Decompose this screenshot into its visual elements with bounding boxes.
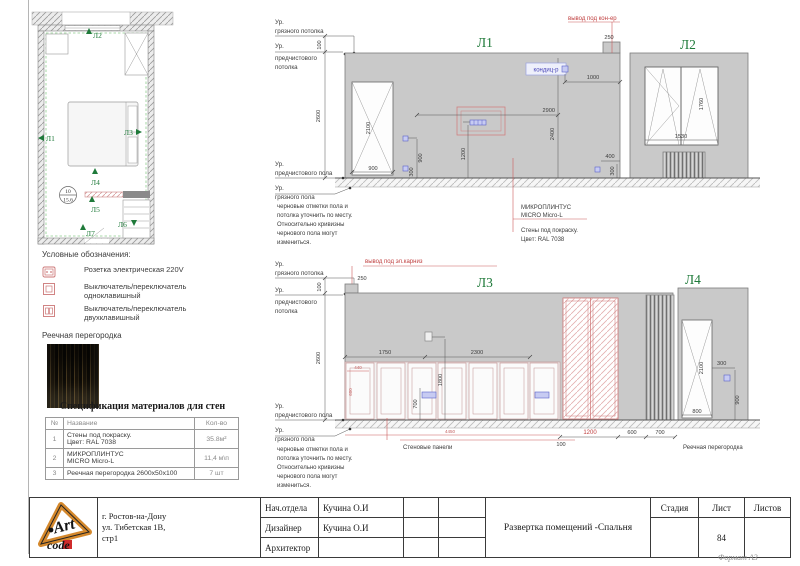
dim-2600: 2600 [316,352,322,364]
note-line-1: черновые отметки пола и [277,447,348,453]
dim-300: 300 [409,167,415,176]
level-dirty-ceiling: грязного потолка [275,270,324,277]
company-logo: Art code [30,499,96,554]
marker-l3: Л3 [124,128,133,137]
spec-row3-num: 3 [46,468,64,480]
callout-conditioner: кондиц-р [534,68,560,74]
slat-partition-photo [47,344,99,408]
sheets-value [745,518,791,558]
duct-outlet-box [603,42,620,53]
title-block: Art code г. Ростов-на-Дону ул. Тибетская… [29,497,791,558]
name-head-of-dept: Кучина О.И [319,498,404,518]
callout-cond-out: вывод под кон-ер [568,16,617,22]
legend-item-switch-single: Выключатель/переключатель одноклавишный [42,283,267,300]
legend-title: Условные обозначения: [42,250,267,259]
dim-4450: 4450 [445,429,456,434]
dim-440: 440 [354,365,362,370]
dim-700: 700 [413,399,419,408]
level-pre-floor: предчистового пола [275,170,333,177]
marker-arrow-l4 [92,168,98,174]
sheet-frame-line [28,0,29,554]
dim-300: 300 [610,166,616,175]
level-pre-ceiling-1: предчистового [275,55,317,62]
dim-300: 300 [717,361,726,367]
level-pre-floor: предчистового пола [275,412,333,419]
role-designer: Дизайнер [261,518,319,538]
socket-strip-icon [422,392,436,398]
plan-slat-partition [85,191,150,198]
legend-switch-double-line2: двухклавишный [84,314,186,323]
elevation-l4-title: Л4 [685,272,701,287]
level-ur: Ур. [275,403,284,410]
conditioner-socket-icon [562,66,568,72]
spec-row1-num: 1 [46,430,64,449]
note-line-2: потолка уточнить по месту. [277,213,353,219]
switch-icon [724,375,730,381]
empty-cell [404,538,439,558]
marker-l5: Л5 [91,205,100,214]
switch-icon [425,332,432,341]
dim-1800: 1800 [438,374,444,386]
spec-col-num: № [46,418,64,430]
note-line-2: потолка уточнить по месту. [277,456,353,462]
spec-table: № Название Кол-во 1 Стены под покраску. … [45,417,239,480]
format-label: Формат А3 [718,553,758,562]
level-dirty-ceiling: грязного потолка [275,28,324,35]
note-line-4: чернового пола могут [277,474,338,480]
name-designer: Кучина О.И [319,518,404,538]
address-line-2: ул. Тибетская 1В, [102,522,256,533]
level-dirty-floor: грязного пола [275,436,315,443]
elevation-l2: 1760 1530 [630,53,748,178]
level-labels-bottom: Ур. грязного потолка Ур. предчистового п… [275,261,355,422]
level-pre-ceiling-1: предчистового [275,299,317,306]
window-l2: 1760 1530 [645,67,718,145]
note-line-4: чернового пола могут [277,231,338,237]
note-line-3: Относительно кривизны [277,222,344,228]
level-ur: Ур. [275,185,284,192]
spec-row-2: 2 МИКРОПЛИНТУС MICRO Micro-L 11,4 м\п [46,449,239,468]
socket-icon [403,166,408,171]
level-dirty-floor: грязного пола [275,194,315,201]
role-architect: Архитектор [261,538,319,558]
callout-skirting-2: MICRO Micro-L [521,213,563,219]
legend-socket-label: Розетка электрическая 220V [84,266,184,275]
legend-switch-single-label: Выключатель/переключатель одноклавишный [84,283,186,300]
dim-2900: 2900 [543,108,555,114]
level-pre-ceiling-2: потолка [275,64,298,71]
elevation-l1-title: Л1 [477,35,493,50]
spec-row3-name: Реечная перегородка 2600x50x100 [64,468,195,480]
dim-900: 900 [735,395,741,404]
dim-2100: 2100 [699,362,705,374]
room-area: 15.6 [63,198,73,204]
spec-table-block: Спецификация материалов для стен № Назва… [45,401,240,480]
level-pre-ceiling-2: потолка [275,308,298,315]
dim-900: 900 [368,166,377,172]
radiator [663,152,705,178]
spec-row-1: 1 Стены под покраску. Цвет: RAL 7038 35.… [46,430,239,449]
legend-switch-double-label: Выключатель/переключатель двухклавишный [84,305,186,322]
floor-hatch-top [335,178,760,187]
empty-cell [439,498,486,518]
slat-partition [646,295,674,420]
level-ur: Ур. [275,287,284,294]
dim-1200: 1200 [583,430,597,436]
logo-cell: Art code [30,498,98,558]
floor-hatch-bottom [335,420,760,428]
dim-600: 600 [348,388,353,396]
dim-100: 100 [317,282,323,291]
dim-1750: 1750 [379,350,391,356]
floor-labels-bottom: Ур. предчистового пола Ур. грязного пола… [275,403,353,489]
logo-code-text: code [47,538,70,552]
spec-row2-qty: 11,4 м\п [195,449,239,468]
stage-label: Стадия [651,498,699,518]
dim-250: 250 [357,276,366,282]
elevation-l2-title: Л2 [680,37,696,52]
plan-neighbor-walls [32,12,173,25]
spec-row2-num: 2 [46,449,64,468]
elevation-l4: 2100 800 300 900 [678,288,748,420]
address-line-3: стр1 [102,533,256,544]
note-line-5: измениться. [277,240,311,246]
document-title: Развертка помещений -Спальня [486,498,651,558]
dim-2100: 2100 [366,122,372,134]
spec-table-title: Спецификация материалов для стен [45,401,240,412]
cornice-outlet-box [345,284,358,293]
callout-paint-1: Стены под покраску. [521,228,578,234]
dim-600: 600 [627,430,636,436]
spec-row2-name2: MICRO Micro-L [67,458,191,465]
dim-250: 250 [604,35,613,41]
address-line-1: г. Ростов-на-Дону [102,511,256,522]
spec-row2-name1: МИКРОПЛИНТУС [67,451,191,458]
legend-partition-label: Реечная перегородка [42,331,267,340]
legend-item-switch-double: Выключатель/переключатель двухклавишный [42,305,267,322]
note-line-3: Относительно кривизны [277,465,344,471]
plan-room-stamp: 10 15.6 [60,187,77,204]
dim-2400: 2400 [550,128,556,140]
role-head-of-dept: Нач.отдела [261,498,319,518]
spec-header-row: № Название Кол-во [46,418,239,430]
socket-icon [595,167,600,172]
dim-800: 800 [692,409,701,415]
stage-value [651,518,699,558]
dim-100: 100 [317,40,323,49]
address-cell: г. Ростов-на-Дону ул. Тибетская 1В, стр1 [98,498,261,558]
callout-slat-partition: Реечная перегородка [683,445,743,451]
wall-panels [345,362,560,420]
dim-700: 700 [655,430,664,436]
empty-cell [439,518,486,538]
dim-2600: 2600 [316,110,322,122]
spec-col-name: Название [64,418,195,430]
door-l4: 2100 800 [682,320,712,418]
door-l1: 2100 900 [350,82,395,175]
spec-col-qty: Кол-во [195,418,239,430]
socket-strip-icon [535,392,549,398]
dim-1760: 1760 [699,98,705,110]
sheets-label: Листов [745,498,791,518]
marker-l7: Л7 [86,229,95,238]
legend-item-socket: Розетка электрическая 220V [42,266,267,278]
dim-900: 900 [418,153,424,162]
dim-1530: 1530 [675,134,687,140]
marker-l2: Л2 [93,31,102,40]
wardrobe [563,298,618,419]
drawing-sheet: 10 15.6 Л2 Л1 Л3 Л4 Л5 Л6 Л7 Условные об… [0,0,800,566]
dim-2300: 2300 [471,350,483,356]
level-ur: Ур. [275,161,284,168]
floor-labels-top: Ур. предчистового пола Ур. грязного пола… [275,161,353,246]
switch-double-icon [42,305,56,317]
level-ur: Ур. [275,43,284,50]
switch-icon [403,136,408,141]
marker-l1: Л1 [46,134,55,143]
elevation-l3: Л3 Л4 Ур. грязного потолка Ур. предчисто… [275,259,701,422]
switch-single-icon [42,283,56,295]
callout-paint-2: Цвет: RAL 7038 [521,237,565,243]
sheet-label: Лист [699,498,745,518]
floor-plan: 10 15.6 Л2 Л1 Л3 Л4 Л5 Л6 Л7 [30,4,180,252]
legend: Условные обозначения: Розетка электричес… [42,250,267,408]
empty-cell [404,518,439,538]
spec-row1-qty: 35.8м² [195,430,239,449]
level-ur: Ур. [275,19,284,26]
elevations-drawing: Л1 Л2 Ур. грязного потолка Ур. предчисто… [265,8,790,495]
dim-1000: 1000 [587,75,599,81]
dim-100: 100 [556,442,565,448]
spec-row1-name: Стены под покраску. Цвет: RAL 7038 [64,430,195,449]
level-labels-top: Ур. грязного потолка Ур. предчистового п… [275,19,355,180]
name-architect [319,538,404,558]
note-line-5: измениться. [277,483,311,489]
empty-cell [439,538,486,558]
plan-closet [123,200,150,238]
spec-row1-name2: Цвет: RAL 7038 [67,439,191,446]
note-line-1: черновые отметки пола и [277,204,348,210]
room-number: 10 [65,189,71,195]
empty-cell [404,498,439,518]
spec-row-3: 3 Реечная перегородка 2600x50x100 7 шт [46,468,239,480]
sheet-number: 84 [699,518,745,558]
callout-wall-panels: Стеновые панели [403,445,452,451]
marker-arrow-l3 [136,129,142,135]
callout-cornice-out: вывод под эл.карниз [365,259,423,265]
elevation-l3-title: Л3 [477,275,493,290]
legend-switch-single-line2: одноклавишный [84,292,186,301]
dim-400: 400 [605,154,614,160]
marker-l4: Л4 [91,178,100,187]
dim-1200: 1200 [461,148,467,160]
callout-skirting-1: МИКРОПЛИНТУС [521,205,572,211]
socket-icon [42,266,56,278]
level-ur: Ур. [275,261,284,268]
plan-door-opening [85,239,109,244]
spec-row2-name: МИКРОПЛИНТУС MICRO Micro-L [64,449,195,468]
spec-row3-qty: 7 шт [195,468,239,480]
level-ur: Ур. [275,427,284,434]
marker-l6: Л6 [118,220,127,229]
spec-row1-name1: Стены под покраску. [67,432,191,439]
